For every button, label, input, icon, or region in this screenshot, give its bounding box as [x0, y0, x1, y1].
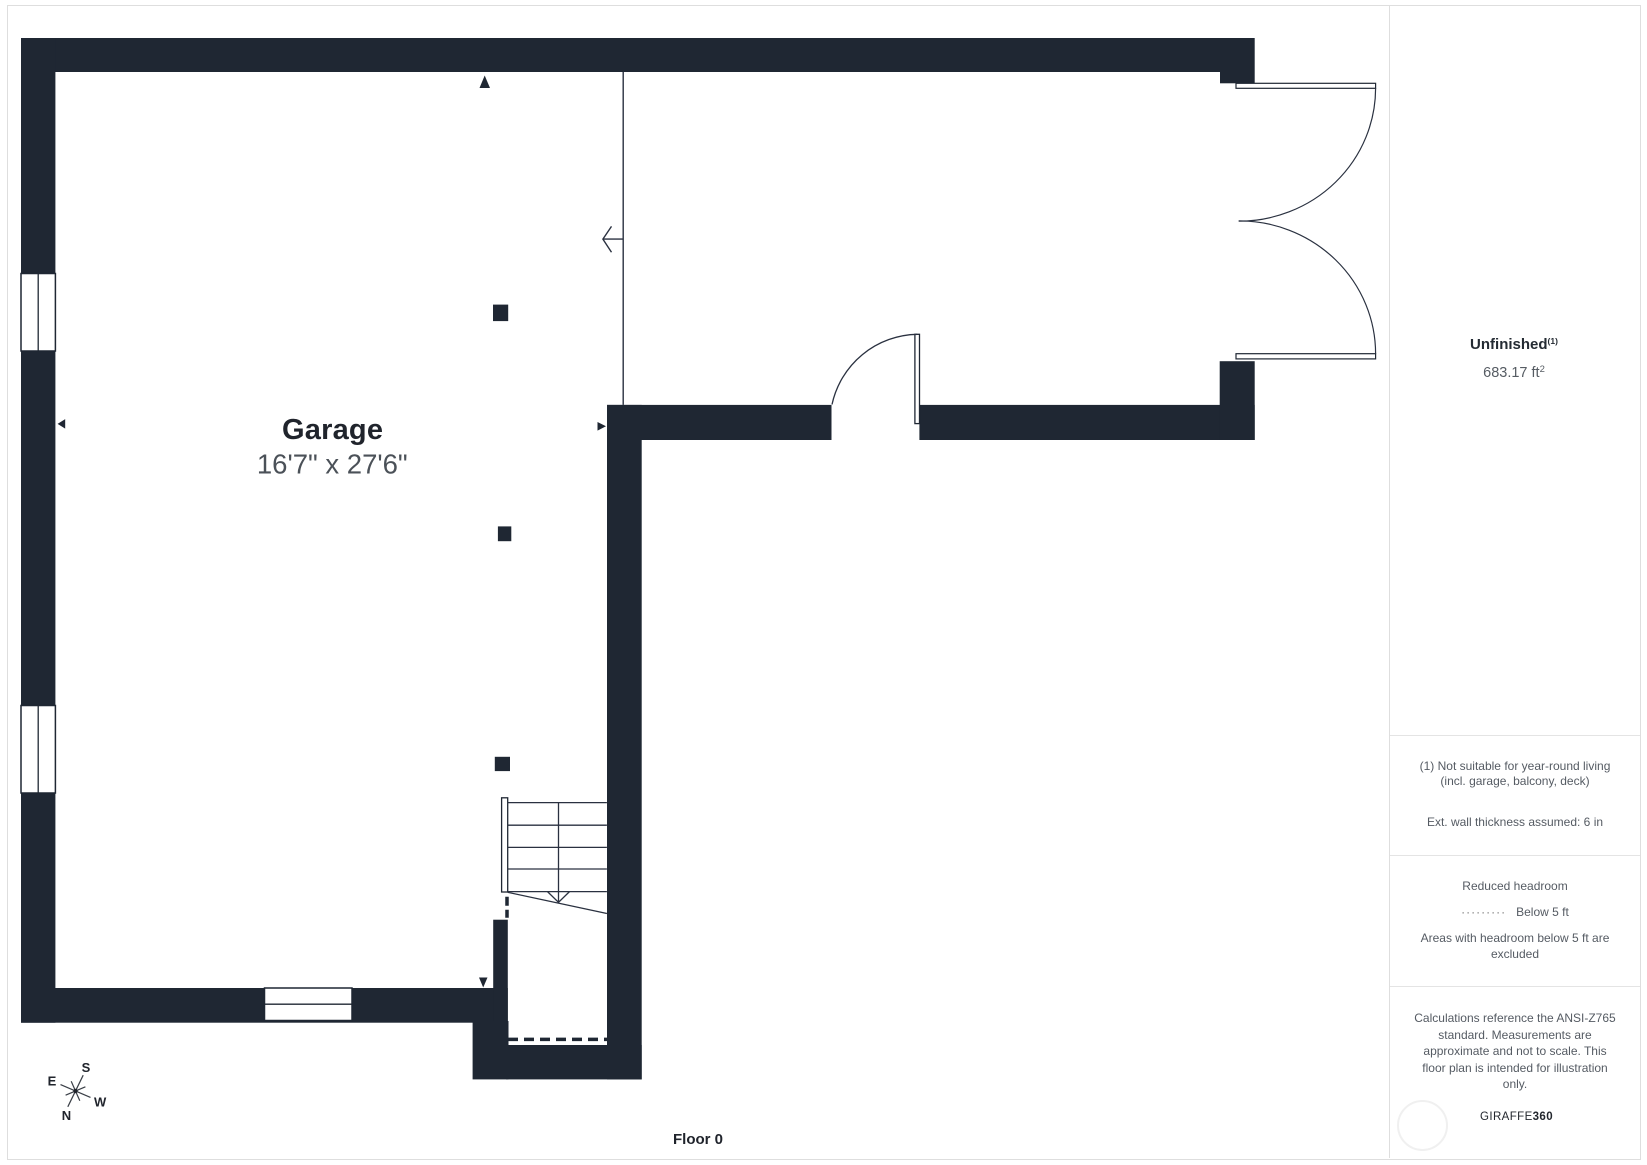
svg-text:E: E	[48, 1074, 57, 1089]
svg-text:Floor 0: Floor 0	[673, 1131, 723, 1148]
svg-text:S: S	[82, 1060, 91, 1075]
svg-text:N: N	[62, 1108, 71, 1123]
svg-text:W: W	[94, 1095, 107, 1110]
svg-text:16'7" x 27'6": 16'7" x 27'6"	[257, 449, 408, 480]
svg-text:Garage: Garage	[282, 414, 383, 446]
